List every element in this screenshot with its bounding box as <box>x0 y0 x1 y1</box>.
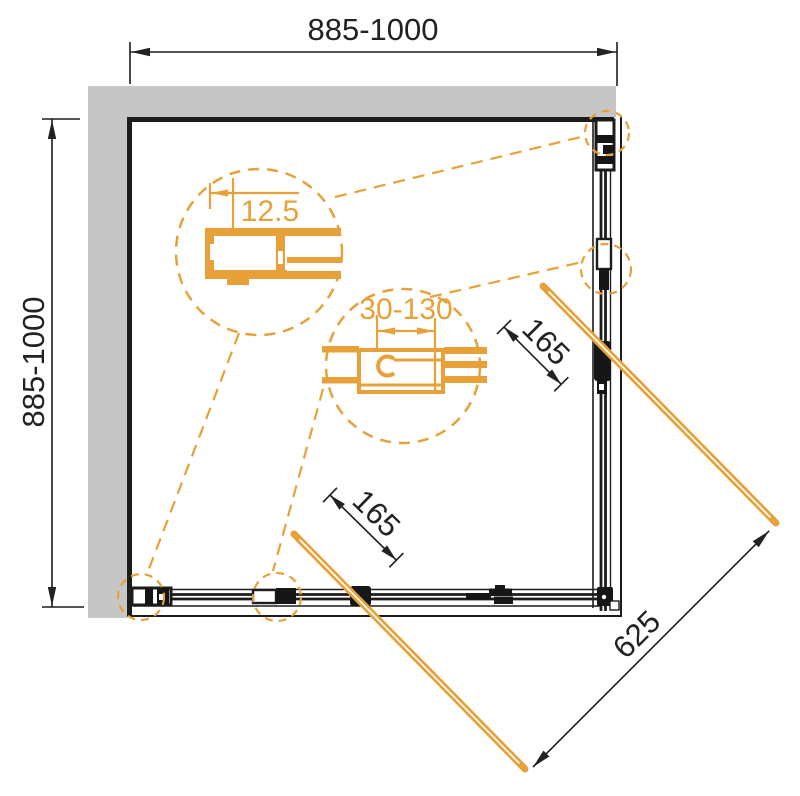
wall-profile-adjust-label: 12.5 <box>241 195 299 228</box>
connector-right-middle <box>597 239 611 290</box>
dimension-handle-bottom: 165 <box>323 469 422 568</box>
handle-bottom-label: 165 <box>346 483 407 544</box>
connector-adjust-label: 30-130 <box>359 293 452 326</box>
door-guide-bottom <box>466 585 513 604</box>
wall-top <box>88 86 616 117</box>
handle-right-label: 165 <box>515 311 576 372</box>
detail-wall-profile-section: 12.5 <box>205 178 341 285</box>
shower-enclosure-plan-drawing: 12.5 30-130 885-1000 <box>0 0 800 796</box>
dimension-entry-diagonal: 625 <box>506 504 772 770</box>
door-handle-bottom <box>294 534 525 769</box>
wall-profile-bottom-left <box>132 588 171 605</box>
wall-profile-top-right <box>596 120 614 170</box>
detail-connector-section: 30-130 <box>322 293 487 392</box>
connector-bottom-middle <box>253 588 296 604</box>
door-handle-right <box>543 286 776 523</box>
entry-diagonal-label: 625 <box>606 604 667 665</box>
dimension-top-width: 885-1000 <box>130 12 617 86</box>
left-depth-label: 885-1000 <box>16 296 51 427</box>
dimension-left-depth: 885-1000 <box>16 119 84 607</box>
top-width-label: 885-1000 <box>307 12 438 47</box>
wall-left <box>88 86 127 618</box>
